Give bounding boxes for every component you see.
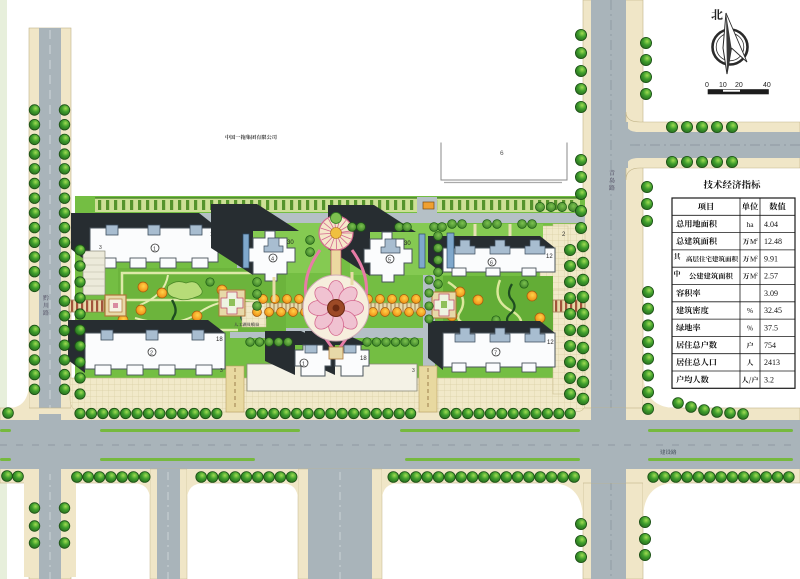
svg-text:3.09: 3.09 — [764, 289, 778, 298]
svg-text:2: 2 — [756, 237, 758, 242]
svg-text:30: 30 — [287, 240, 294, 246]
svg-text:4.04: 4.04 — [764, 220, 778, 229]
svg-text:2.57: 2.57 — [764, 272, 778, 281]
svg-text:4: 4 — [271, 257, 274, 263]
svg-text:3: 3 — [412, 368, 415, 374]
svg-text:18: 18 — [360, 356, 367, 362]
svg-text:2: 2 — [756, 272, 758, 277]
svg-text:12: 12 — [547, 340, 554, 346]
svg-text:32.45: 32.45 — [764, 306, 782, 315]
svg-text:%: % — [747, 306, 753, 315]
svg-text:18: 18 — [216, 337, 223, 343]
svg-text:ha: ha — [746, 220, 754, 229]
svg-text:3: 3 — [99, 245, 102, 251]
svg-text:5: 5 — [388, 258, 391, 264]
svg-text:9.91: 9.91 — [764, 254, 778, 263]
svg-text:2: 2 — [756, 254, 758, 259]
svg-text:3.2: 3.2 — [764, 375, 774, 384]
svg-text:3: 3 — [220, 368, 223, 374]
svg-text:0: 0 — [705, 82, 709, 89]
svg-text:2: 2 — [150, 351, 153, 357]
svg-text:754: 754 — [764, 341, 776, 350]
svg-text:10: 10 — [719, 82, 727, 89]
svg-text:12.48: 12.48 — [764, 237, 782, 246]
svg-text:30: 30 — [404, 241, 411, 247]
svg-text:6: 6 — [500, 150, 504, 157]
svg-text:20: 20 — [735, 82, 743, 89]
svg-text:6: 6 — [490, 261, 493, 267]
svg-text:1: 1 — [153, 247, 156, 253]
svg-text:7: 7 — [494, 351, 497, 357]
svg-text:%: % — [747, 324, 753, 333]
svg-text:37.5: 37.5 — [764, 324, 778, 333]
svg-text:1: 1 — [302, 362, 305, 368]
svg-text:12: 12 — [546, 254, 553, 260]
svg-text:40: 40 — [763, 82, 771, 89]
svg-text:2413: 2413 — [764, 358, 780, 367]
